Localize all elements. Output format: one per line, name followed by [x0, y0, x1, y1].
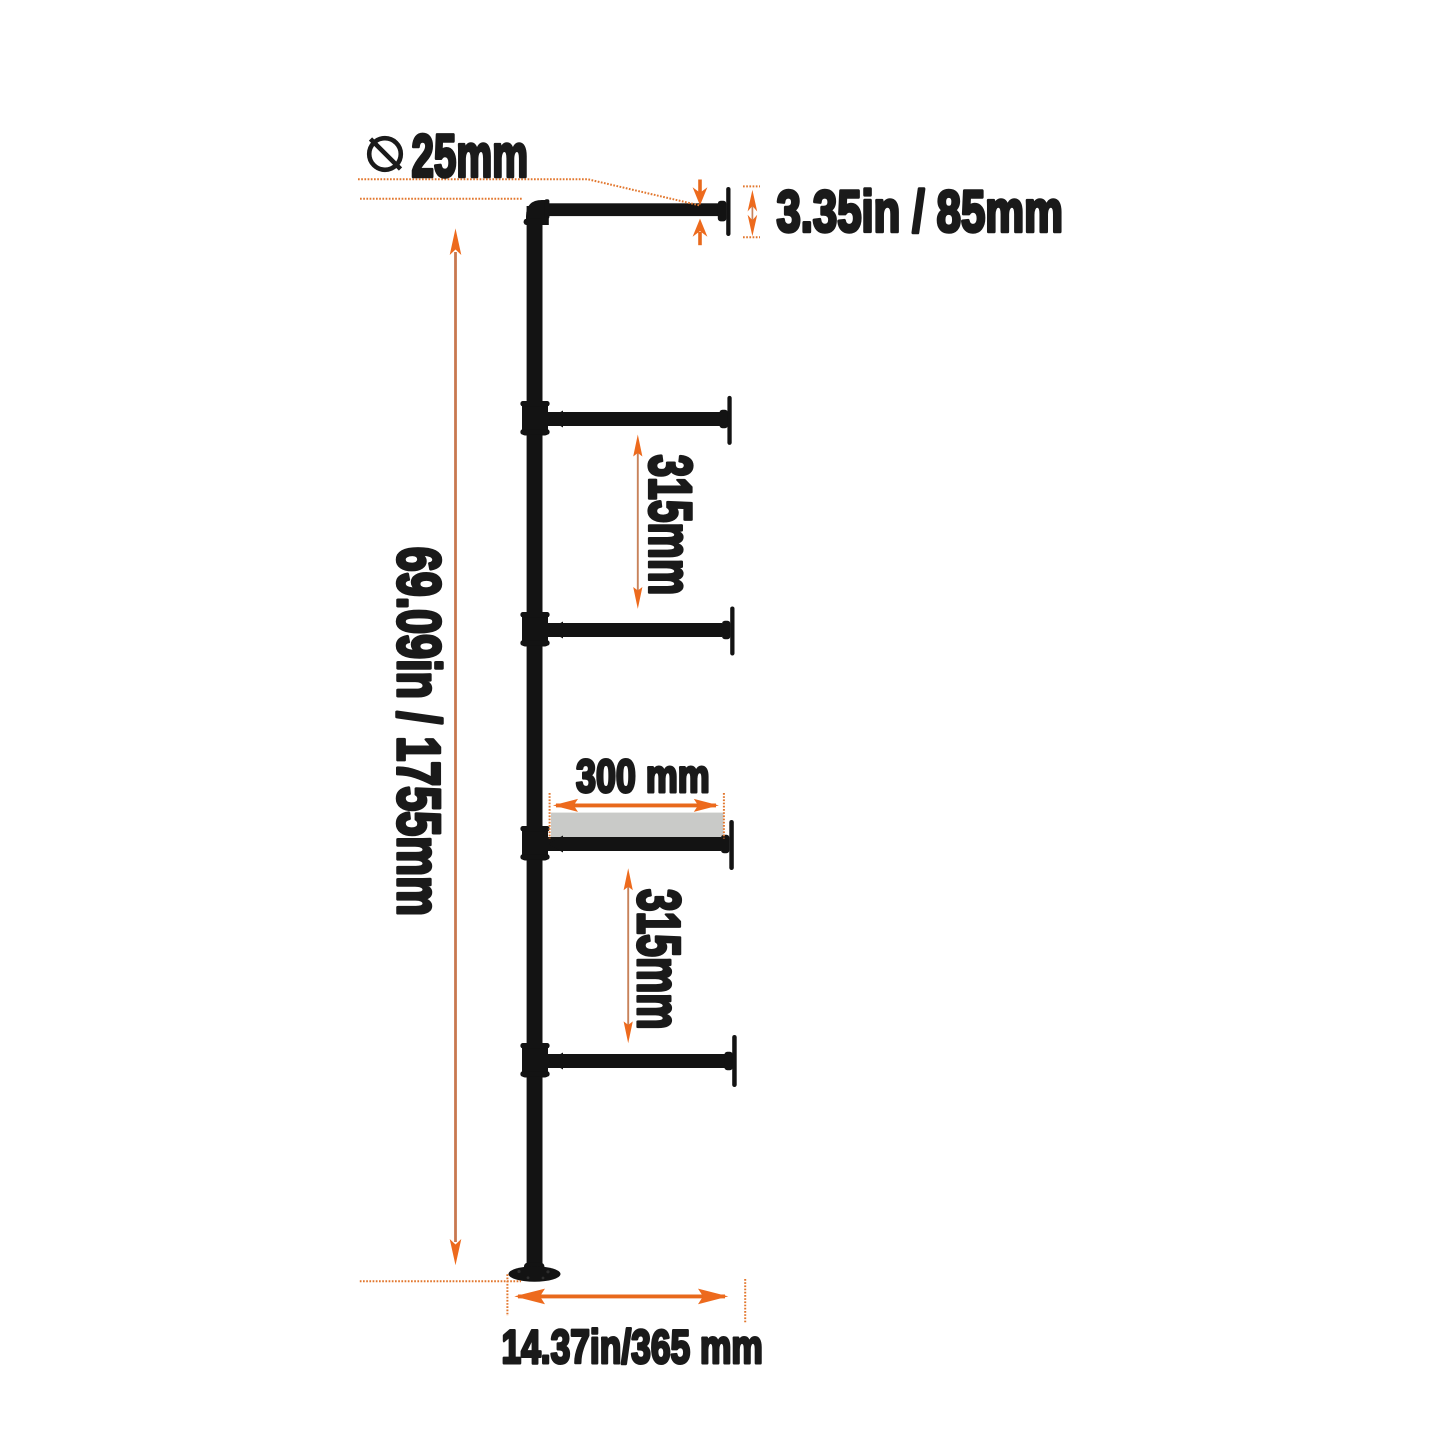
- svg-text:14.37in/365 mm: 14.37in/365 mm: [502, 1320, 763, 1373]
- svg-text:315mm: 315mm: [637, 455, 704, 596]
- svg-text:315mm: 315mm: [625, 889, 692, 1030]
- svg-text:69.09in / 1755mm: 69.09in / 1755mm: [384, 547, 451, 916]
- svg-text:25mm: 25mm: [412, 123, 529, 190]
- svg-text:3.35in / 85mm: 3.35in / 85mm: [777, 180, 1063, 244]
- svg-text:300 mm: 300 mm: [576, 751, 710, 802]
